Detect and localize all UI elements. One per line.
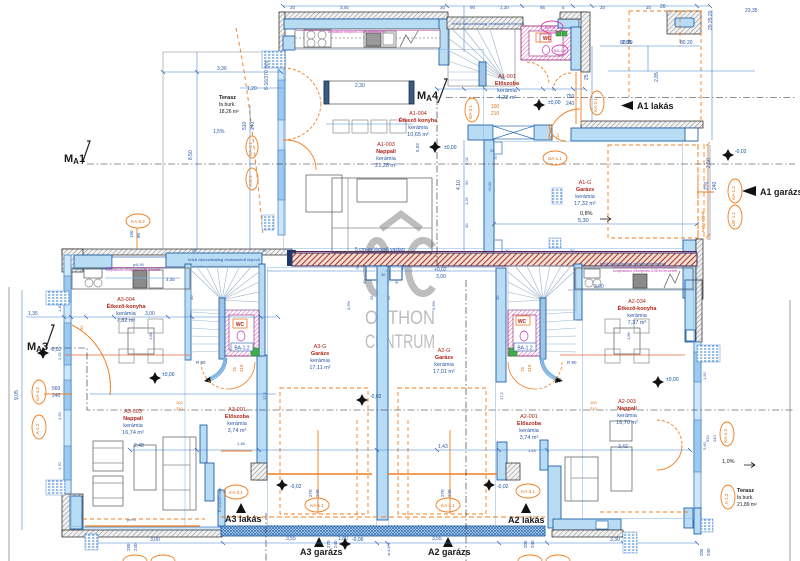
svg-text:2,50: 2,50 bbox=[706, 158, 712, 168]
svg-text:2,60: 2,60 bbox=[702, 441, 707, 450]
svg-text:A2-034: A2-034 bbox=[628, 299, 646, 305]
svg-text:270: 270 bbox=[704, 181, 710, 190]
svg-text:210: 210 bbox=[527, 364, 532, 372]
svg-text:±0,00: ±0,00 bbox=[548, 100, 561, 106]
svg-text:fa burk.: fa burk. bbox=[737, 495, 754, 501]
svg-text:±0,00: ±0,00 bbox=[666, 377, 679, 383]
svg-text:1,40: 1,40 bbox=[57, 303, 62, 312]
svg-text:A3-G: A3-G bbox=[314, 344, 327, 350]
svg-text:KA-2.1: KA-2.1 bbox=[593, 98, 598, 112]
svg-text:10,65 m²: 10,65 m² bbox=[407, 132, 429, 138]
svg-text:16,70 m²: 16,70 m² bbox=[616, 420, 638, 426]
svg-text:4,28 m²: 4,28 m² bbox=[498, 95, 517, 101]
svg-text:240: 240 bbox=[315, 489, 320, 497]
svg-text:510: 510 bbox=[242, 121, 248, 130]
svg-text:23,35: 23,35 bbox=[745, 8, 758, 14]
svg-text:17,32 m²: 17,32 m² bbox=[574, 201, 596, 207]
svg-text:A2 lakás: A2 lakás bbox=[508, 515, 545, 525]
svg-text:16,74 m²: 16,74 m² bbox=[122, 430, 144, 436]
svg-text:560: 560 bbox=[52, 386, 61, 392]
svg-text:100: 100 bbox=[176, 400, 183, 405]
svg-text:3,36: 3,36 bbox=[217, 66, 227, 72]
svg-text:25: 25 bbox=[192, 248, 197, 253]
svg-text:2,25: 2,25 bbox=[57, 351, 62, 360]
svg-text:E=(0)150 mm: E=(0)150 mm bbox=[217, 487, 222, 512]
svg-text:st 4,8%: st 4,8% bbox=[386, 542, 391, 556]
svg-text:WC: WC bbox=[518, 319, 527, 325]
svg-text:1,86: 1,86 bbox=[626, 331, 631, 340]
svg-text:KA-1.1: KA-1.1 bbox=[441, 503, 455, 508]
svg-text:KA-4.3: KA-4.3 bbox=[723, 429, 728, 443]
svg-text:3,00: 3,00 bbox=[436, 274, 446, 280]
svg-text:A1-004: A1-004 bbox=[409, 111, 427, 117]
svg-text:kerámia: kerámia bbox=[376, 156, 397, 162]
svg-text:270: 270 bbox=[308, 489, 313, 497]
svg-text:3,74 m²: 3,74 m² bbox=[228, 428, 247, 434]
svg-text:kerámia: kerámia bbox=[617, 413, 638, 419]
svg-text:20: 20 bbox=[490, 148, 495, 153]
svg-text:+0,02: +0,02 bbox=[487, 181, 492, 192]
svg-text:80: 80 bbox=[136, 232, 141, 238]
svg-text:75: 75 bbox=[401, 265, 406, 270]
svg-text:Előszoba: Előszoba bbox=[495, 81, 520, 87]
svg-text:-0,02: -0,02 bbox=[50, 347, 62, 353]
svg-text:KA-1.2: KA-1.2 bbox=[731, 186, 736, 200]
svg-text:3,55: 3,55 bbox=[432, 536, 442, 542]
svg-text:Terasz: Terasz bbox=[219, 95, 236, 101]
svg-text:A2-003: A2-003 bbox=[618, 399, 636, 405]
svg-text:KA-3.1: KA-3.1 bbox=[229, 490, 243, 495]
svg-text:80 20: 80 20 bbox=[620, 40, 633, 46]
svg-text:Terasz: Terasz bbox=[737, 488, 754, 494]
svg-text:A3-001: A3-001 bbox=[228, 407, 246, 413]
svg-text:30: 30 bbox=[189, 295, 194, 300]
svg-text:75: 75 bbox=[493, 155, 498, 160]
svg-text:A2-G: A2-G bbox=[438, 348, 451, 354]
svg-text:4,10: 4,10 bbox=[456, 180, 462, 190]
svg-text:7,82 m²: 7,82 m² bbox=[117, 318, 136, 324]
svg-text:30: 30 bbox=[505, 248, 510, 253]
svg-text:konyhabútor elhelyezés 2,35 te: konyhabútor elhelyezés 2,35 tervezett bbox=[106, 267, 161, 272]
svg-text:WC: WC bbox=[543, 36, 552, 42]
svg-text:A1 lakás: A1 lakás bbox=[637, 101, 674, 111]
svg-text:BA-5.1: BA-5.1 bbox=[545, 25, 559, 30]
svg-text:7,37 m²: 7,37 m² bbox=[628, 320, 647, 326]
svg-text:Nappali: Nappali bbox=[617, 406, 637, 412]
svg-text:KA-1.1: KA-1.1 bbox=[310, 503, 324, 508]
svg-text:kerámia: kerámia bbox=[227, 421, 248, 427]
svg-text:20: 20 bbox=[290, 5, 296, 10]
svg-text:Garázs: Garázs bbox=[435, 355, 453, 361]
svg-text:ÜE-1.1: ÜE-1.1 bbox=[730, 212, 736, 227]
svg-text:205: 205 bbox=[523, 540, 528, 548]
svg-text:20: 20 bbox=[600, 5, 606, 10]
svg-text:205: 205 bbox=[699, 548, 704, 556]
svg-text:-0,02: -0,02 bbox=[290, 484, 302, 490]
svg-text:A-5.1: A-5.1 bbox=[248, 175, 253, 186]
svg-text:2,30: 2,30 bbox=[355, 83, 365, 89]
svg-text:25: 25 bbox=[584, 74, 590, 80]
svg-text:20: 20 bbox=[646, 5, 652, 10]
svg-text:kerámia: kerámia bbox=[123, 423, 144, 429]
svg-text:17,5: 17,5 bbox=[262, 391, 267, 400]
svg-text:OTTHON: OTTHON bbox=[365, 308, 435, 329]
svg-text:A1-003: A1-003 bbox=[377, 142, 395, 148]
svg-text:kerámia: kerámia bbox=[627, 313, 648, 319]
svg-text:-0,02: -0,02 bbox=[497, 484, 509, 490]
svg-text:2,02: 2,02 bbox=[464, 156, 469, 165]
svg-text:WC: WC bbox=[236, 322, 245, 328]
svg-text:1,30: 1,30 bbox=[500, 5, 509, 10]
svg-text:75: 75 bbox=[520, 366, 525, 372]
svg-text:A3 lakás: A3 lakás bbox=[225, 514, 262, 524]
svg-text:R 90: R 90 bbox=[567, 360, 577, 365]
svg-text:BA-1.2: BA-1.2 bbox=[234, 346, 250, 352]
svg-text:1,48: 1,48 bbox=[237, 441, 246, 446]
svg-text:75: 75 bbox=[232, 366, 237, 372]
svg-text:BA-1.2: BA-1.2 bbox=[517, 346, 533, 352]
svg-text:KA-3.1: KA-3.1 bbox=[521, 489, 535, 494]
svg-text:Étkező-konyha: Étkező-konyha bbox=[618, 304, 658, 312]
svg-text:BA-1.1: BA-1.1 bbox=[548, 156, 562, 161]
svg-text:1,70: 1,70 bbox=[57, 461, 62, 470]
svg-text:210: 210 bbox=[239, 364, 244, 372]
svg-text:8-16/370 mm: 8-16/370 mm bbox=[264, 61, 270, 90]
svg-text:30: 30 bbox=[394, 279, 399, 284]
svg-text:30: 30 bbox=[495, 295, 500, 300]
svg-text:kerámia: kerámia bbox=[434, 362, 455, 368]
svg-text:270: 270 bbox=[440, 489, 445, 497]
svg-text:2,48: 2,48 bbox=[134, 443, 144, 449]
svg-text:kerámia: kerámia bbox=[310, 358, 331, 364]
svg-text:1,86: 1,86 bbox=[148, 331, 153, 340]
svg-text:±0,00: ±0,00 bbox=[444, 145, 457, 151]
svg-text:A2-001: A2-001 bbox=[520, 414, 538, 420]
svg-text:A2 garázs: A2 garázs bbox=[428, 547, 471, 557]
svg-text:80 20: 80 20 bbox=[680, 40, 693, 46]
svg-text:3,00: 3,00 bbox=[145, 311, 155, 317]
svg-text:1,5%: 1,5% bbox=[213, 129, 225, 135]
svg-text:kerámia: kerámia bbox=[408, 125, 429, 131]
svg-text:1,50: 1,50 bbox=[57, 411, 62, 420]
svg-text:240: 240 bbox=[447, 489, 452, 497]
svg-text:Garázs: Garázs bbox=[576, 187, 594, 193]
svg-text:KA-4.1: KA-4.1 bbox=[248, 142, 253, 156]
svg-text:A-1.3: A-1.3 bbox=[724, 493, 729, 504]
svg-text:A1 garázs: A1 garázs bbox=[760, 187, 800, 197]
svg-text:270: 270 bbox=[326, 540, 331, 548]
svg-text:100: 100 bbox=[491, 104, 500, 110]
svg-text:2,85: 2,85 bbox=[654, 72, 660, 82]
svg-text:-0,02: -0,02 bbox=[735, 149, 747, 155]
svg-text:±0,00: ±0,00 bbox=[162, 372, 175, 378]
svg-text:Garázs: Garázs bbox=[311, 351, 329, 357]
svg-text:30: 30 bbox=[464, 223, 469, 228]
svg-text:-0,09: -0,09 bbox=[352, 537, 364, 543]
svg-text:3,30: 3,30 bbox=[610, 537, 620, 543]
svg-text:1,20: 1,20 bbox=[247, 86, 257, 92]
svg-text:20: 20 bbox=[660, 4, 666, 10]
svg-text:A1-001: A1-001 bbox=[498, 74, 516, 80]
svg-text:R 90: R 90 bbox=[196, 360, 206, 365]
svg-text:1,35: 1,35 bbox=[28, 311, 38, 317]
svg-text:240: 240 bbox=[250, 121, 256, 130]
svg-text:Előszoba: Előszoba bbox=[225, 414, 250, 420]
svg-text:kerámia: kerámia bbox=[519, 428, 540, 434]
svg-text:kerámia: kerámia bbox=[116, 311, 137, 317]
svg-text:90: 90 bbox=[79, 325, 84, 330]
svg-text:210: 210 bbox=[491, 111, 500, 117]
svg-text:75: 75 bbox=[355, 265, 360, 270]
svg-text:pm 0: pm 0 bbox=[127, 517, 137, 522]
svg-text:5,03: 5,03 bbox=[415, 143, 420, 152]
svg-text:3,74 m²: 3,74 m² bbox=[520, 435, 539, 441]
svg-text:240: 240 bbox=[712, 435, 717, 442]
svg-text:3,00: 3,00 bbox=[594, 284, 604, 290]
svg-text:3,42: 3,42 bbox=[618, 444, 628, 450]
svg-text:17,5: 17,5 bbox=[499, 391, 504, 400]
svg-text:240: 240 bbox=[52, 393, 61, 399]
svg-text:-0,02: -0,02 bbox=[370, 394, 382, 400]
svg-text:90: 90 bbox=[464, 180, 469, 185]
svg-text:240: 240 bbox=[706, 548, 711, 556]
svg-text:1,43: 1,43 bbox=[438, 444, 448, 450]
svg-text:A3-003: A3-003 bbox=[124, 409, 142, 415]
svg-text:3,45: 3,45 bbox=[340, 5, 349, 10]
svg-text:30: 30 bbox=[381, 272, 386, 277]
svg-text:210: 210 bbox=[555, 133, 560, 140]
svg-text:fa burk.: fa burk. bbox=[219, 102, 236, 108]
svg-text:240: 240 bbox=[530, 540, 535, 548]
svg-text:A-1.2: A-1.2 bbox=[35, 423, 40, 434]
svg-text:21,89 m²: 21,89 m² bbox=[737, 502, 757, 508]
svg-text:1,0%: 1,0% bbox=[722, 459, 735, 465]
svg-text:240: 240 bbox=[333, 540, 338, 548]
svg-text:150: 150 bbox=[129, 230, 134, 238]
svg-text:0,8%: 0,8% bbox=[580, 211, 593, 217]
svg-text:240: 240 bbox=[133, 543, 138, 551]
svg-text:CENTRUM: CENTRUM bbox=[365, 332, 435, 353]
svg-text:3,00: 3,00 bbox=[150, 537, 160, 543]
svg-text:Nappali: Nappali bbox=[123, 416, 143, 422]
svg-text:9,05: 9,05 bbox=[14, 390, 20, 400]
svg-text:felső akusztikailag elválaszto: felső akusztikailag elválasztott lépcső bbox=[452, 21, 525, 26]
svg-text:25: 25 bbox=[369, 295, 374, 300]
svg-text:3,55: 3,55 bbox=[286, 536, 296, 542]
svg-text:210: 210 bbox=[176, 406, 183, 411]
svg-text:1,25: 1,25 bbox=[464, 196, 469, 205]
svg-text:konyhabútor elhelyezés 2,95 fm: konyhabútor elhelyezés 2,95 fm tervezett… bbox=[328, 29, 386, 34]
svg-text:4,35: 4,35 bbox=[166, 277, 175, 282]
svg-text:100: 100 bbox=[590, 400, 597, 405]
svg-text:5 cm-es lépcső vastag: 5 cm-es lépcső vastag bbox=[355, 247, 405, 253]
svg-text:0,5%: 0,5% bbox=[431, 300, 436, 310]
svg-text:240: 240 bbox=[566, 101, 575, 107]
svg-text:8,50: 8,50 bbox=[188, 150, 194, 160]
svg-text:21,28 m²: 21,28 m² bbox=[375, 163, 397, 169]
svg-text:1,80: 1,80 bbox=[338, 536, 348, 542]
svg-text:kerámia: kerámia bbox=[575, 194, 596, 200]
svg-text:90: 90 bbox=[470, 5, 476, 10]
svg-text:Étkező konyha: Étkező konyha bbox=[399, 116, 438, 124]
svg-text:30: 30 bbox=[362, 279, 367, 284]
svg-text:25: 25 bbox=[386, 295, 391, 300]
svg-text:520: 520 bbox=[705, 435, 710, 442]
svg-text:17,11 m²: 17,11 m² bbox=[309, 365, 330, 371]
svg-text:+0,02: +0,02 bbox=[434, 267, 447, 273]
svg-text:18,26 m²: 18,26 m² bbox=[219, 109, 239, 115]
svg-text:BA-1.2: BA-1.2 bbox=[554, 48, 567, 53]
svg-text:Előszoba: Előszoba bbox=[517, 421, 542, 427]
svg-text:750: 750 bbox=[566, 94, 575, 100]
svg-text:20 25 20: 20 25 20 bbox=[708, 10, 714, 30]
svg-text:Nappali: Nappali bbox=[376, 149, 396, 155]
svg-text:konyhabútor elhelyezés 3,05 fm: konyhabútor elhelyezés 3,05 fm tervezett bbox=[613, 268, 678, 273]
svg-text:30: 30 bbox=[440, 5, 446, 10]
svg-text:5,30: 5,30 bbox=[578, 218, 589, 224]
svg-text:95: 95 bbox=[540, 5, 546, 10]
svg-text:30: 30 bbox=[570, 248, 575, 253]
svg-text:210: 210 bbox=[590, 406, 597, 411]
svg-text:A3-004: A3-004 bbox=[117, 297, 135, 303]
svg-text:240: 240 bbox=[712, 181, 718, 190]
svg-text:Étkező-konyha: Étkező-konyha bbox=[107, 302, 147, 310]
svg-text:KA-5.2: KA-5.2 bbox=[131, 219, 145, 224]
svg-text:1,50: 1,50 bbox=[702, 371, 707, 380]
svg-text:A1-G: A1-G bbox=[579, 180, 592, 186]
svg-text:30: 30 bbox=[262, 248, 267, 253]
svg-text:KA-4.2: KA-4.2 bbox=[35, 387, 40, 401]
svg-text:felső akusztikailag elválaszto: felső akusztikailag elválasztott lépcső bbox=[188, 257, 261, 262]
svg-text:0,5%: 0,5% bbox=[346, 300, 351, 310]
svg-text:1,43: 1,43 bbox=[528, 448, 537, 453]
svg-text:75: 75 bbox=[549, 135, 554, 140]
svg-text:285: 285 bbox=[126, 543, 131, 551]
svg-text:BA-3.1: BA-3.1 bbox=[468, 105, 473, 119]
svg-text:felső akusztikailag elválaszto: felső akusztikailag elválasztott lépcső bbox=[600, 261, 667, 266]
svg-text:17,01 m²: 17,01 m² bbox=[433, 369, 455, 375]
svg-text:üveg elétolt: üveg elétolt bbox=[700, 211, 705, 232]
